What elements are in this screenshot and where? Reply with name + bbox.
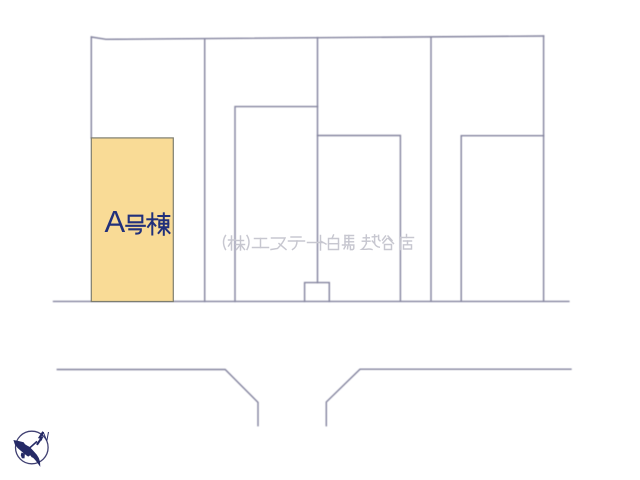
svg-text:A: A — [105, 204, 126, 239]
svg-text:N: N — [41, 432, 50, 444]
